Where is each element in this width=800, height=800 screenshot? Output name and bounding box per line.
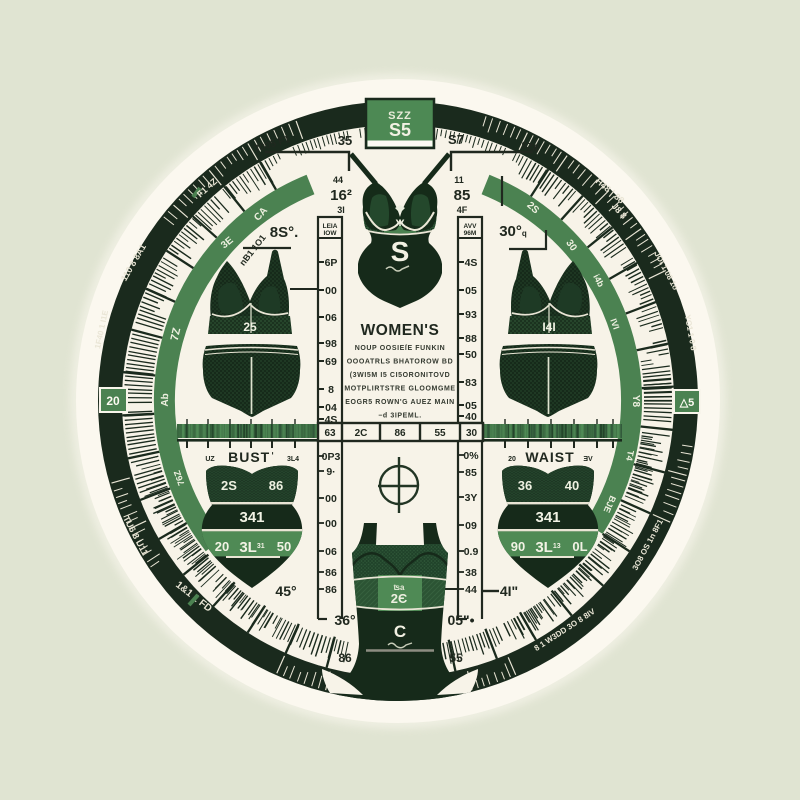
svg-text:I4I: I4I xyxy=(542,320,555,334)
svg-text:05: 05 xyxy=(465,285,477,297)
svg-text:△5: △5 xyxy=(679,397,695,409)
svg-text:30: 30 xyxy=(466,428,478,439)
svg-text:UZ: UZ xyxy=(205,456,215,463)
svg-text:Ab: Ab xyxy=(160,393,171,407)
svg-text:6P: 6P xyxy=(325,257,338,269)
svg-text:45°: 45° xyxy=(275,583,296,599)
svg-text:−d 3IPEML.: −d 3IPEML. xyxy=(378,413,422,420)
svg-text:20: 20 xyxy=(508,456,516,463)
svg-text:00: 00 xyxy=(325,285,337,297)
svg-text:86: 86 xyxy=(394,428,406,439)
svg-text:35: 35 xyxy=(338,133,352,148)
svg-text:8S°.: 8S°. xyxy=(270,224,299,241)
svg-text:83: 83 xyxy=(465,377,477,389)
svg-text:0P3: 0P3 xyxy=(322,451,341,463)
svg-text:44: 44 xyxy=(465,584,477,596)
svg-text:88: 88 xyxy=(465,333,477,345)
svg-text:2Є: 2Є xyxy=(391,591,407,606)
svg-text:55: 55 xyxy=(449,651,463,665)
svg-text:40: 40 xyxy=(565,478,579,493)
svg-text:C: C xyxy=(394,622,406,641)
svg-text:36°: 36° xyxy=(334,612,355,628)
svg-text:85: 85 xyxy=(454,187,471,204)
svg-text:IOW: IOW xyxy=(324,230,338,237)
svg-text:16²: 16² xyxy=(330,187,352,204)
svg-text:50: 50 xyxy=(465,349,477,361)
svg-text:93: 93 xyxy=(465,309,477,321)
svg-text:11: 11 xyxy=(454,175,464,185)
svg-text:9·: 9· xyxy=(326,466,335,478)
svg-text:86: 86 xyxy=(325,584,337,596)
svg-text:00: 00 xyxy=(325,493,337,505)
svg-text:00: 00 xyxy=(325,518,337,530)
svg-text:0L: 0L xyxy=(572,539,587,554)
svg-text:20: 20 xyxy=(215,539,229,554)
svg-text:4Iʺ: 4Iʺ xyxy=(500,583,518,599)
svg-text:Y8: Y8 xyxy=(630,395,641,408)
svg-text:(3WI5M I5 CI5ORONITOVD: (3WI5M I5 CI5ORONITOVD xyxy=(350,372,451,379)
svg-text:20: 20 xyxy=(106,394,120,408)
svg-text:40: 40 xyxy=(465,411,477,423)
svg-text:BUSTˈ: BUSTˈ xyxy=(228,449,276,465)
svg-text:3Y: 3Y xyxy=(465,492,478,504)
svg-text:WAIST: WAIST xyxy=(525,449,574,465)
svg-text:55: 55 xyxy=(434,428,446,439)
svg-text:90: 90 xyxy=(511,539,525,554)
svg-text:85: 85 xyxy=(465,467,477,479)
svg-text:341: 341 xyxy=(535,509,560,526)
svg-text:06: 06 xyxy=(325,312,337,324)
svg-text:04: 04 xyxy=(325,402,337,414)
svg-text:86: 86 xyxy=(269,478,283,493)
svg-text:86: 86 xyxy=(325,567,337,579)
svg-text:06: 06 xyxy=(325,546,337,558)
svg-text:WOMEN'S: WOMEN'S xyxy=(361,322,440,339)
svg-text:ƎV: ƎV xyxy=(583,456,593,463)
svg-text:8: 8 xyxy=(328,384,334,396)
svg-text:T4: T4 xyxy=(624,449,636,461)
svg-text:36: 36 xyxy=(518,478,532,493)
svg-text:341: 341 xyxy=(239,509,264,526)
svg-text:LEIA: LEIA xyxy=(323,223,338,230)
svg-text:4F: 4F xyxy=(457,205,468,215)
svg-text:44: 44 xyxy=(333,175,343,185)
svg-text:MOTPLIRTSTRE GLOOMGME: MOTPLIRTSTRE GLOOMGME xyxy=(344,386,455,393)
svg-text:63: 63 xyxy=(324,428,336,439)
svg-text:98: 98 xyxy=(325,338,337,350)
svg-text:86: 86 xyxy=(338,651,352,665)
svg-text:50: 50 xyxy=(277,539,291,554)
svg-text:09: 09 xyxy=(465,520,477,532)
svg-text:0%: 0% xyxy=(463,450,479,462)
svg-text:S7: S7 xyxy=(448,132,464,147)
svg-text:3I: 3I xyxy=(337,205,345,215)
svg-text:0.9: 0.9 xyxy=(464,546,479,558)
svg-text:25: 25 xyxy=(243,320,257,334)
svg-text:S5: S5 xyxy=(389,120,411,140)
svg-text:S: S xyxy=(391,236,410,267)
svg-text:2S: 2S xyxy=(221,478,237,493)
svg-text:NOUP OOSIEſE FUNKIN: NOUP OOSIEſE FUNKIN xyxy=(355,345,446,352)
svg-text:EOGR5 ROWN'G AUEZ MAIN: EOGR5 ROWN'G AUEZ MAIN xyxy=(345,399,455,406)
svg-text:2C: 2C xyxy=(355,428,368,439)
svg-text:05ʺ•: 05ʺ• xyxy=(447,612,474,628)
svg-text:96M: 96M xyxy=(464,230,477,237)
svg-text:AVV: AVV xyxy=(464,223,478,230)
svg-text:ж: ж xyxy=(395,215,405,229)
svg-text:4S: 4S xyxy=(465,257,478,269)
svg-text:69: 69 xyxy=(325,356,337,368)
svg-text:OOOATRLS BHATOROW BD: OOOATRLS BHATOROW BD xyxy=(347,359,454,366)
svg-text:38: 38 xyxy=(465,567,477,579)
svg-text:3L4: 3L4 xyxy=(287,456,299,463)
